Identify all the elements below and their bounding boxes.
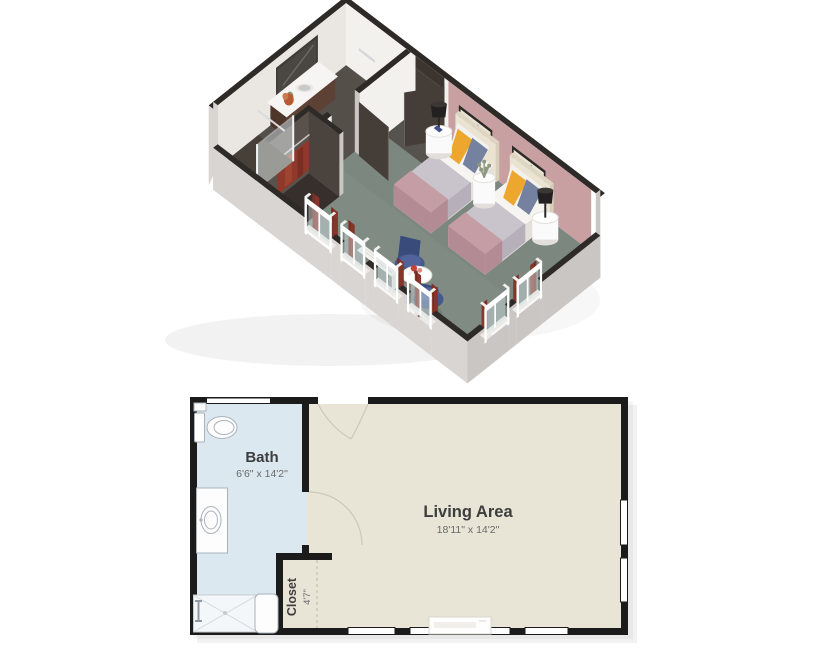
3d-floor-plan	[165, 0, 605, 383]
window-icon	[525, 628, 568, 635]
shelf	[194, 403, 206, 411]
faucet	[199, 518, 202, 521]
floor-plan-image: Bath 6'6" x 14'2" Living Area 18'11" x 1…	[0, 0, 816, 648]
living-area-label: Living Area	[423, 503, 513, 521]
window-icon	[621, 500, 628, 545]
toilet-tank	[195, 413, 205, 442]
entry-door-opening	[318, 397, 368, 404]
bath-dimensions: 6'6" x 14'2"	[236, 468, 288, 480]
toilet-bowl	[207, 417, 237, 439]
bath-label: Bath	[245, 449, 278, 466]
window-icon	[621, 558, 628, 602]
bath-niche	[207, 399, 270, 404]
closet-label: Closet	[285, 577, 299, 616]
2d-floor-plan: Bath 6'6" x 14'2" Living Area 18'11" x 1…	[190, 397, 637, 643]
window-icon	[348, 628, 395, 635]
ptac-unit	[429, 617, 491, 634]
wall-closet-top	[276, 553, 332, 560]
closet-dimensions: 4'7"	[302, 589, 313, 605]
shower-bench	[255, 594, 278, 633]
floor-plan-page: Bath 6'6" x 14'2" Living Area 18'11" x 1…	[0, 0, 816, 648]
wall-bath-divider	[302, 397, 309, 492]
living-area-dimensions: 18'11" x 14'2"	[437, 524, 500, 536]
shower-drain	[223, 611, 227, 615]
